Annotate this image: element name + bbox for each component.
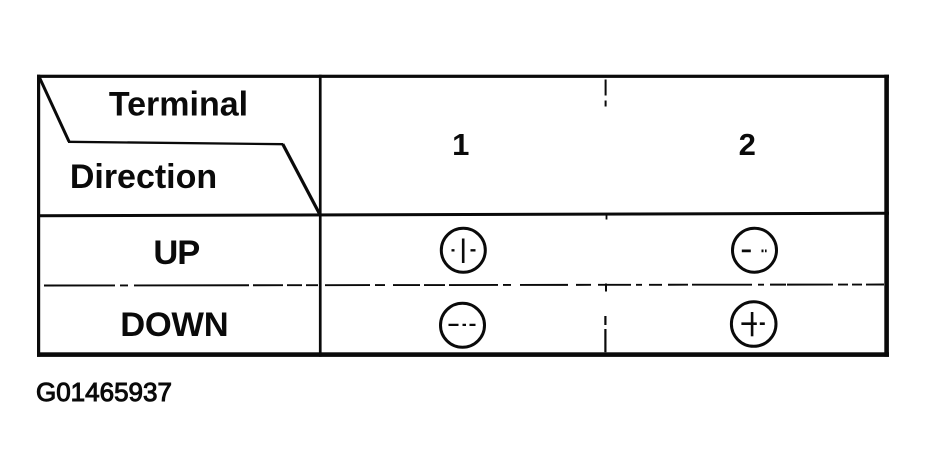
- svg-text:1: 1: [452, 127, 469, 162]
- svg-text:DOWN: DOWN: [120, 306, 228, 344]
- svg-text:UP: UP: [153, 234, 199, 272]
- svg-text:Terminal: Terminal: [109, 86, 248, 124]
- svg-text:Direction: Direction: [70, 158, 217, 196]
- svg-text:G01465937: G01465937: [36, 377, 172, 407]
- svg-text:2: 2: [739, 127, 756, 162]
